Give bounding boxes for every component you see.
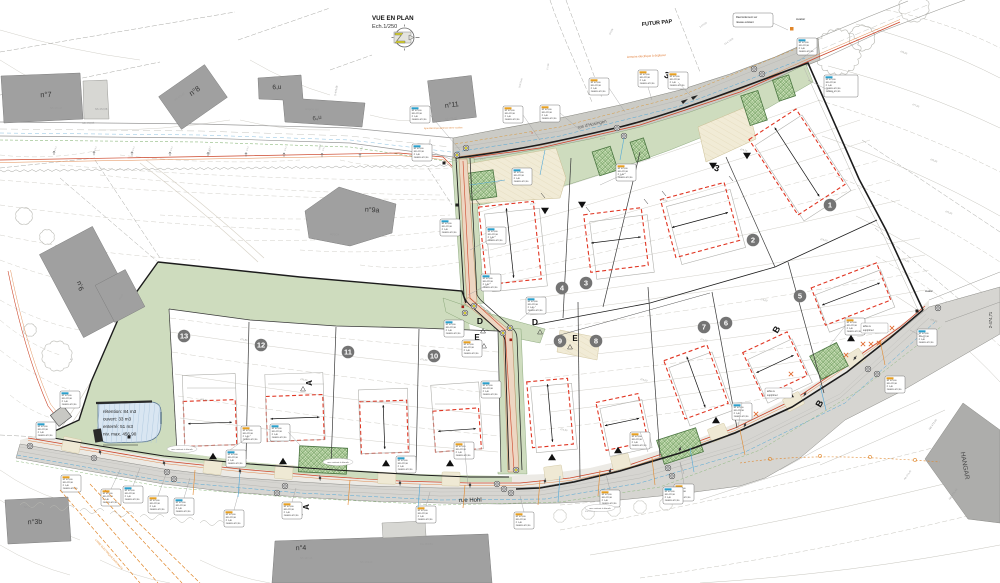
svg-text:enterré: 51 m3: enterré: 51 m3 bbox=[103, 424, 133, 429]
svg-text:NT 473,00: NT 473,00 bbox=[542, 109, 553, 111]
svg-text:2008/10 472,30: 2008/10 472,30 bbox=[919, 342, 934, 344]
svg-text:NR 472,36: NR 472,36 bbox=[243, 433, 254, 435]
svg-text:6: 6 bbox=[724, 319, 728, 328]
svg-text:NT 473,00: NT 473,00 bbox=[63, 479, 74, 481]
svg-text:NR 472,36: NR 472,36 bbox=[514, 175, 525, 177]
svg-text:NT 473,00: NT 473,00 bbox=[505, 110, 516, 112]
svg-text:NR 472,36: NR 472,36 bbox=[226, 517, 237, 519]
svg-text:NR 472,36: NR 472,36 bbox=[826, 82, 837, 84]
svg-text:11: 11 bbox=[344, 348, 352, 357]
svg-text:P 1,40: P 1,40 bbox=[226, 520, 233, 522]
svg-text:2008/10 472,30: 2008/10 472,30 bbox=[456, 455, 471, 457]
svg-text:3: 3 bbox=[584, 279, 588, 288]
svg-text:P 1,40: P 1,40 bbox=[456, 452, 463, 454]
svg-text:BUSCH: BUSCH bbox=[330, 232, 339, 236]
svg-text:n°9: n°9 bbox=[312, 114, 322, 121]
svg-text:2008/10 472,30: 2008/10 472,30 bbox=[483, 287, 498, 289]
svg-text:P 1,40: P 1,40 bbox=[670, 82, 677, 84]
svg-text:P 1,40: P 1,40 bbox=[665, 497, 672, 499]
svg-text:P 1,40: P 1,40 bbox=[442, 229, 449, 231]
svg-text:2008/10 472,30: 2008/10 472,30 bbox=[125, 499, 140, 501]
svg-text:NR 472,36: NR 472,36 bbox=[412, 113, 423, 115]
svg-text:NR 472,36: NR 472,36 bbox=[483, 388, 494, 390]
svg-text:2008/10 472,30: 2008/10 472,30 bbox=[542, 118, 557, 120]
svg-text:6,u: 6,u bbox=[272, 84, 282, 91]
svg-text:n°4: n°4 bbox=[296, 544, 307, 552]
svg-text:2008/10 472,30: 2008/10 472,30 bbox=[150, 509, 165, 511]
svg-text:NT 473,00: NT 473,00 bbox=[272, 428, 283, 430]
svg-text:7: 7 bbox=[702, 323, 706, 332]
svg-text:KG 463-B1: KG 463-B1 bbox=[420, 542, 433, 546]
svg-text:5: 5 bbox=[798, 292, 802, 301]
svg-text:NS 471,47: NS 471,47 bbox=[50, 106, 63, 110]
svg-text:E: E bbox=[572, 334, 578, 343]
svg-text:NR 472,36: NR 472,36 bbox=[632, 439, 643, 441]
svg-text:NT 473,00: NT 473,00 bbox=[516, 516, 527, 518]
svg-text:P 1,40: P 1,40 bbox=[632, 442, 639, 444]
svg-text:Avaloir: Avaloir bbox=[925, 289, 933, 293]
svg-text:NR 472,36: NR 472,36 bbox=[640, 77, 651, 79]
svg-text:P 1,40: P 1,40 bbox=[734, 413, 741, 415]
svg-text:NR 472,36: NR 472,36 bbox=[542, 112, 553, 114]
svg-text:NR 472,36: NR 472,36 bbox=[228, 457, 239, 459]
svg-text:NT 473,00: NT 473,00 bbox=[456, 446, 467, 448]
svg-text:NT 473,00: NT 473,00 bbox=[618, 168, 629, 170]
svg-text:NR 472,36: NR 472,36 bbox=[442, 226, 453, 228]
svg-text:NR 472,36: NR 472,36 bbox=[284, 509, 295, 511]
svg-text:NT 473,00: NT 473,00 bbox=[640, 74, 651, 76]
svg-text:arbre à: arbre à bbox=[767, 390, 775, 393]
svg-text:NR 472,36: NR 472,36 bbox=[272, 431, 283, 433]
svg-text:10: 10 bbox=[430, 352, 438, 361]
svg-text:NR 472,36: NR 472,36 bbox=[505, 113, 516, 115]
svg-text:NT 473,00: NT 473,00 bbox=[734, 407, 745, 409]
svg-text:NT 473,00: NT 473,00 bbox=[446, 324, 457, 326]
svg-text:P 1,40: P 1,40 bbox=[887, 386, 894, 388]
svg-text:NS 472,08: NS 472,08 bbox=[95, 107, 108, 111]
svg-text:NT 473,00: NT 473,00 bbox=[919, 333, 930, 335]
svg-text:2008/10 472,30: 2008/10 472,30 bbox=[62, 404, 77, 406]
svg-text:NR 472,36: NR 472,36 bbox=[398, 463, 409, 465]
svg-text:niv. max. 456,90: niv. max. 456,90 bbox=[103, 432, 137, 437]
svg-text:2008/10 472,30: 2008/10 472,30 bbox=[176, 511, 191, 513]
svg-text:P 1,40: P 1,40 bbox=[150, 506, 157, 508]
svg-text:NT 473,00: NT 473,00 bbox=[412, 110, 423, 112]
svg-text:P 1,40: P 1,40 bbox=[514, 178, 521, 180]
svg-text:NT 473,00: NT 473,00 bbox=[602, 494, 613, 496]
svg-text:NR 472,36: NR 472,36 bbox=[528, 304, 539, 306]
svg-text:2008/10 472,30: 2008/10 472,30 bbox=[464, 353, 479, 355]
svg-text:P 1,40: P 1,40 bbox=[505, 116, 512, 118]
svg-text:NR 472,36: NR 472,36 bbox=[847, 325, 858, 327]
svg-text:2008/10 472,30: 2008/10 472,30 bbox=[826, 88, 841, 90]
svg-text:rétention: 84 m3: rétention: 84 m3 bbox=[103, 409, 137, 414]
svg-text:2008/10 472,30: 2008/10 472,30 bbox=[272, 437, 287, 439]
svg-text:réseau existant: réseau existant bbox=[736, 20, 754, 24]
svg-text:P 1,40: P 1,40 bbox=[516, 522, 523, 524]
svg-text:NR 472,36: NR 472,36 bbox=[670, 79, 681, 81]
svg-text:D: D bbox=[477, 316, 483, 326]
svg-text:NR 472,36: NR 472,36 bbox=[799, 45, 810, 47]
svg-text:rue Hohl: rue Hohl bbox=[459, 498, 482, 504]
svg-text:BUSCH SN: BUSCH SN bbox=[305, 107, 319, 111]
svg-text:2008/10 472,30: 2008/10 472,30 bbox=[418, 519, 433, 521]
svg-text:ouvert: 33 m3: ouvert: 33 m3 bbox=[103, 417, 132, 422]
svg-text:1: 1 bbox=[828, 201, 832, 210]
svg-text:P 1,40: P 1,40 bbox=[412, 116, 419, 118]
svg-text:2008/10 472,30: 2008/10 472,30 bbox=[412, 119, 427, 121]
svg-text:NR 472,36: NR 472,36 bbox=[887, 383, 898, 385]
svg-text:D: D bbox=[532, 317, 538, 327]
svg-text:P 1,40: P 1,40 bbox=[919, 339, 926, 341]
svg-text:NT 473,00: NT 473,00 bbox=[243, 430, 254, 432]
svg-text:2008/10 472,30: 2008/10 472,30 bbox=[887, 389, 902, 391]
svg-text:NR 472,36: NR 472,36 bbox=[38, 429, 49, 431]
svg-text:NT 473,00: NT 473,00 bbox=[847, 322, 858, 324]
svg-text:NT 473,00: NT 473,00 bbox=[442, 223, 453, 225]
svg-text:NT 473,00: NT 473,00 bbox=[62, 395, 73, 397]
svg-text:2008/10 472,30: 2008/10 472,30 bbox=[505, 119, 520, 121]
svg-text:supprimer: supprimer bbox=[767, 394, 778, 397]
svg-text:NR 472,36: NR 472,36 bbox=[62, 398, 73, 400]
svg-text:NT 473,00: NT 473,00 bbox=[799, 42, 810, 44]
svg-text:P 1,40: P 1,40 bbox=[38, 432, 45, 434]
svg-text:2008/10 472,30: 2008/10 472,30 bbox=[442, 232, 457, 234]
svg-text:NT 473,00: NT 473,00 bbox=[632, 436, 643, 438]
svg-text:NT 473,00: NT 473,00 bbox=[38, 426, 49, 428]
svg-text:P 1,40: P 1,40 bbox=[284, 512, 291, 514]
svg-text:NT 473,00: NT 473,00 bbox=[887, 380, 898, 382]
svg-text:P 1,40: P 1,40 bbox=[243, 436, 250, 438]
svg-text:NT 473,00: NT 473,00 bbox=[591, 82, 602, 84]
svg-text:P 1,40: P 1,40 bbox=[591, 88, 598, 90]
svg-text:n°7: n°7 bbox=[40, 90, 52, 99]
svg-text:NR 472,36: NR 472,36 bbox=[516, 519, 527, 521]
svg-text:P 1,40: P 1,40 bbox=[446, 330, 453, 332]
svg-text:P 1,40: P 1,40 bbox=[63, 485, 70, 487]
svg-text:2-474,71: 2-474,71 bbox=[988, 311, 993, 328]
svg-text:2: 2 bbox=[751, 236, 755, 245]
svg-text:NT 473,00: NT 473,00 bbox=[528, 301, 539, 303]
svg-text:2008/10 472,30: 2008/10 472,30 bbox=[488, 240, 503, 242]
svg-text:mur existant à démolir: mur existant à démolir bbox=[171, 448, 193, 451]
svg-text:NS 472,36: NS 472,36 bbox=[82, 121, 95, 125]
svg-text:mur existant à démolir: mur existant à démolir bbox=[327, 461, 349, 464]
svg-text:NR 472,36: NR 472,36 bbox=[591, 85, 602, 87]
svg-text:P 1,40: P 1,40 bbox=[228, 460, 235, 462]
svg-text:13: 13 bbox=[180, 332, 188, 341]
svg-text:Raccordement sur: Raccordement sur bbox=[736, 15, 757, 19]
svg-text:NT 473,00: NT 473,00 bbox=[483, 385, 494, 387]
svg-text:12: 12 bbox=[257, 341, 265, 350]
svg-text:9: 9 bbox=[558, 337, 562, 346]
svg-text:NT 473,00: NT 473,00 bbox=[514, 172, 525, 174]
svg-text:P 1,40: P 1,40 bbox=[826, 85, 833, 87]
svg-text:2008/10 472,30: 2008/10 472,30 bbox=[103, 502, 118, 504]
svg-text:NT 473,00: NT 473,00 bbox=[488, 231, 499, 233]
svg-text:A: A bbox=[302, 504, 311, 510]
svg-text:2008/10 472,30: 2008/10 472,30 bbox=[847, 331, 862, 333]
svg-text:NR 472,36: NR 472,36 bbox=[602, 497, 613, 499]
svg-text:2008/10 472,30: 2008/10 472,30 bbox=[414, 157, 429, 159]
svg-text:NR 472,36: NR 472,36 bbox=[63, 482, 74, 484]
svg-text:P 1,40: P 1,40 bbox=[483, 391, 490, 393]
svg-text:NT 473,00: NT 473,00 bbox=[665, 491, 676, 493]
svg-text:2008/10 472,30: 2008/10 472,30 bbox=[446, 333, 461, 335]
svg-text:NT 473,00: NT 473,00 bbox=[483, 278, 494, 280]
svg-text:P 1,40: P 1,40 bbox=[418, 516, 425, 518]
svg-text:P 1,40: P 1,40 bbox=[640, 80, 647, 82]
svg-text:2008/10 472,30: 2008/10 472,30 bbox=[398, 469, 413, 471]
svg-text:arbre à: arbre à bbox=[863, 325, 871, 328]
svg-text:supprimer: supprimer bbox=[863, 329, 874, 332]
svg-text:NR 472,36: NR 472,36 bbox=[446, 327, 457, 329]
svg-text:NT 473,00: NT 473,00 bbox=[418, 510, 429, 512]
svg-text:8: 8 bbox=[594, 337, 598, 346]
svg-text:P 1,40: P 1,40 bbox=[398, 466, 405, 468]
svg-text:P 1,40: P 1,40 bbox=[125, 496, 132, 498]
svg-text:NT 473,00: NT 473,00 bbox=[670, 76, 681, 78]
svg-text:NT 473,00: NT 473,00 bbox=[150, 500, 161, 502]
svg-text:NR 472,36: NR 472,36 bbox=[176, 505, 187, 507]
svg-text:NR 472,36: NR 472,36 bbox=[125, 493, 136, 495]
svg-text:NR 472,36: NR 472,36 bbox=[618, 171, 629, 173]
svg-text:2008/10 472,30: 2008/10 472,30 bbox=[284, 515, 299, 517]
svg-text:NT 473,00: NT 473,00 bbox=[228, 454, 239, 456]
svg-text:VUE EN PLAN: VUE EN PLAN bbox=[372, 15, 414, 22]
svg-text:NS 47/143: NS 47/143 bbox=[360, 560, 373, 564]
svg-text:NT 473,00: NT 473,00 bbox=[464, 344, 475, 346]
svg-text:NR 472,36: NR 472,36 bbox=[464, 347, 475, 349]
svg-text:Avaloir: Avaloir bbox=[796, 17, 805, 21]
svg-text:n°3b: n°3b bbox=[28, 518, 43, 527]
svg-text:NS 467,16: NS 467,16 bbox=[300, 556, 313, 560]
svg-text:P 1,40: P 1,40 bbox=[62, 401, 69, 403]
svg-text:NR 472,36: NR 472,36 bbox=[734, 410, 745, 412]
svg-text:P 1,40: P 1,40 bbox=[272, 434, 279, 436]
svg-text:2008/10 472,30: 2008/10 472,30 bbox=[670, 85, 685, 87]
svg-text:P 1,40: P 1,40 bbox=[542, 115, 549, 117]
svg-text:NT 473,00: NT 473,00 bbox=[414, 148, 425, 150]
svg-text:mur existant à démolir: mur existant à démolir bbox=[589, 507, 611, 510]
svg-text:P 1,40: P 1,40 bbox=[176, 508, 183, 510]
svg-text:NT 473,00: NT 473,00 bbox=[284, 506, 295, 508]
svg-text:2008/10 472,30: 2008/10 472,30 bbox=[514, 181, 529, 183]
svg-text:P 1,40: P 1,40 bbox=[602, 500, 609, 502]
svg-text:2008/10 472,30: 2008/10 472,30 bbox=[516, 525, 531, 527]
svg-text:P 1,40: P 1,40 bbox=[414, 154, 421, 156]
svg-text:2008/10 472,30: 2008/10 472,30 bbox=[632, 445, 647, 447]
svg-text:2008/10 472,30: 2008/10 472,30 bbox=[640, 83, 655, 85]
svg-text:NR 472,36: NR 472,36 bbox=[665, 494, 676, 496]
svg-text:NT 473,00: NT 473,00 bbox=[176, 502, 187, 504]
svg-text:2008/10 472,30: 2008/10 472,30 bbox=[799, 51, 814, 53]
svg-text:Ech.1/250: Ech.1/250 bbox=[372, 24, 397, 30]
svg-text:NT 473,00: NT 473,00 bbox=[826, 79, 837, 81]
svg-text:P 1,40: P 1,40 bbox=[799, 48, 806, 50]
svg-text:NT 473,00: NT 473,00 bbox=[103, 493, 114, 495]
svg-text:NR 472,36: NR 472,36 bbox=[488, 234, 499, 236]
svg-text:NT 473,00: NT 473,00 bbox=[125, 490, 136, 492]
svg-text:NT 473,00: NT 473,00 bbox=[398, 460, 409, 462]
svg-text:NR 472,36: NR 472,36 bbox=[483, 281, 494, 283]
svg-text:NR 472,36: NR 472,36 bbox=[418, 513, 429, 515]
svg-text:NR 472,36: NR 472,36 bbox=[414, 151, 425, 153]
svg-text:2008/10 472,30: 2008/10 472,30 bbox=[226, 523, 241, 525]
svg-text:2008/10 472,30: 2008/10 472,30 bbox=[734, 416, 749, 418]
svg-text:2008/10 472,30: 2008/10 472,30 bbox=[483, 394, 498, 396]
svg-text:P 1,40: P 1,40 bbox=[847, 328, 854, 330]
svg-text:NR 472,36: NR 472,36 bbox=[150, 503, 161, 505]
svg-text:2008/10 472,30: 2008/10 472,30 bbox=[618, 177, 633, 179]
svg-text:n°9a: n°9a bbox=[365, 206, 380, 215]
svg-text:2008/10 472,30: 2008/10 472,30 bbox=[591, 91, 606, 93]
svg-text:2008/10 472,30: 2008/10 472,30 bbox=[38, 435, 53, 437]
svg-text:2008/10 472,30: 2008/10 472,30 bbox=[228, 463, 243, 465]
svg-text:NT 473,00: NT 473,00 bbox=[226, 514, 237, 516]
svg-text:P 1,40: P 1,40 bbox=[464, 350, 471, 352]
svg-text:2008/10 472,30: 2008/10 472,30 bbox=[665, 500, 680, 502]
